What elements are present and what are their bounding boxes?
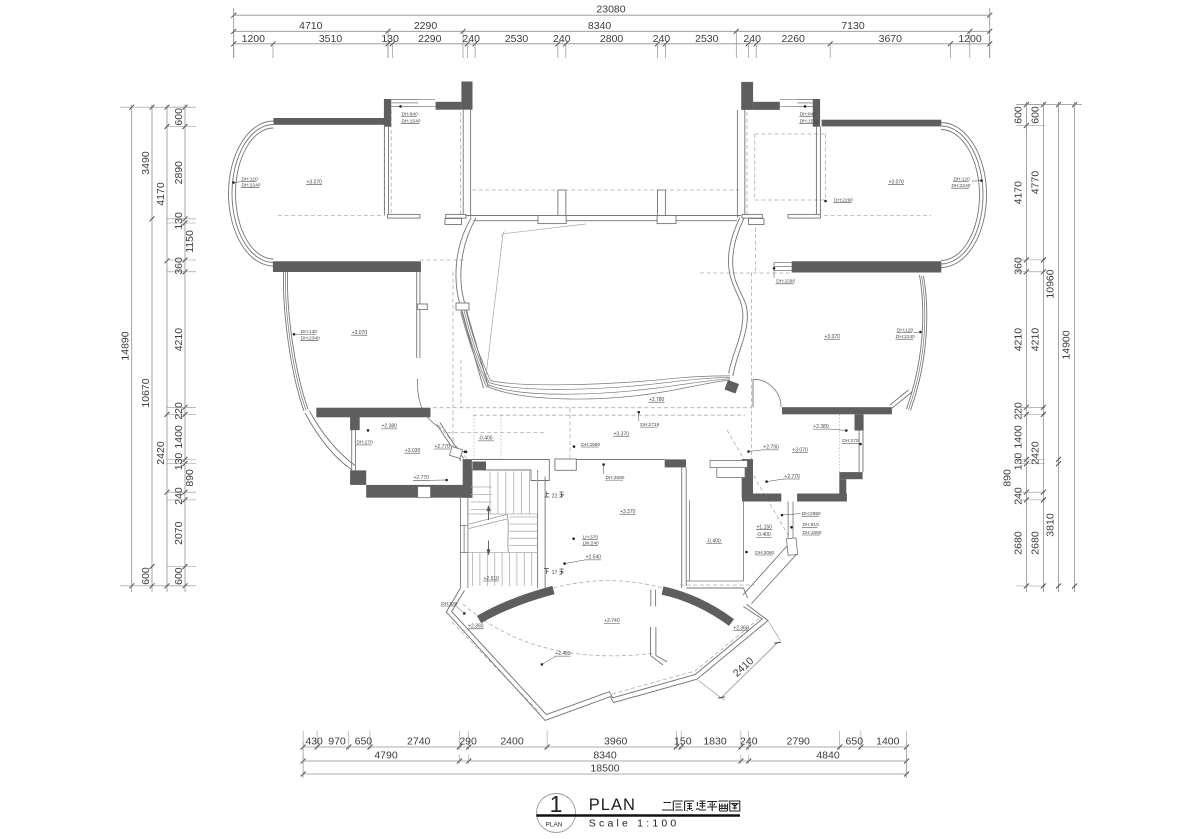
svg-text:650: 650 (355, 736, 373, 748)
svg-text:4710: 4710 (299, 20, 323, 32)
svg-text:2420: 2420 (155, 441, 167, 465)
svg-text:22: 22 (552, 494, 558, 500)
svg-text:240: 240 (740, 736, 758, 748)
svg-text:430: 430 (305, 736, 323, 748)
svg-text:2530: 2530 (695, 33, 719, 45)
svg-text:2740: 2740 (407, 736, 431, 748)
svg-text:4210: 4210 (1013, 328, 1025, 352)
svg-text:4210: 4210 (173, 328, 185, 352)
svg-text:3510: 3510 (319, 33, 343, 45)
svg-text:14890: 14890 (120, 331, 132, 360)
svg-text:14900: 14900 (1061, 330, 1073, 359)
svg-text:3960: 3960 (604, 736, 628, 748)
svg-text:17: 17 (552, 570, 558, 576)
svg-text:10670: 10670 (140, 378, 152, 407)
svg-text:4840: 4840 (816, 749, 840, 761)
svg-text:2530: 2530 (505, 33, 529, 45)
svg-text:8340: 8340 (588, 20, 612, 32)
svg-text:2890: 2890 (173, 161, 185, 185)
svg-text:4770: 4770 (1030, 171, 1042, 195)
svg-text:240: 240 (1013, 487, 1025, 505)
svg-text:360: 360 (1013, 257, 1025, 275)
svg-text:PLAN: PLAN (589, 796, 636, 814)
svg-text:240: 240 (653, 33, 671, 45)
svg-text:1400: 1400 (173, 425, 185, 449)
svg-text:240: 240 (743, 33, 761, 45)
svg-text:130: 130 (173, 212, 185, 230)
svg-text:2790: 2790 (787, 736, 811, 748)
svg-text:1150: 1150 (184, 230, 196, 253)
svg-text:600: 600 (1030, 106, 1042, 124)
svg-text:130: 130 (381, 33, 399, 45)
svg-text:150: 150 (674, 736, 692, 748)
svg-text:1400: 1400 (876, 736, 900, 748)
svg-text:600: 600 (173, 567, 185, 585)
svg-text:600: 600 (140, 567, 152, 585)
svg-text:1400: 1400 (1013, 425, 1025, 449)
svg-text:240: 240 (462, 33, 480, 45)
svg-text:360: 360 (173, 257, 185, 275)
svg-text:2070: 2070 (173, 521, 185, 545)
svg-text:890: 890 (1002, 469, 1014, 487)
svg-text:890: 890 (184, 469, 196, 487)
svg-text:4210: 4210 (1030, 328, 1042, 352)
svg-text:1830: 1830 (703, 736, 727, 748)
svg-text:10960: 10960 (1045, 269, 1057, 298)
svg-text:290: 290 (459, 736, 477, 748)
svg-text:2420: 2420 (1030, 441, 1042, 465)
svg-text:2680: 2680 (1013, 531, 1025, 555)
svg-text:600: 600 (173, 108, 185, 126)
svg-text:240: 240 (173, 487, 185, 505)
svg-text:2260: 2260 (782, 33, 806, 45)
svg-text:650: 650 (846, 736, 864, 748)
svg-text:4170: 4170 (1013, 181, 1025, 205)
svg-text:Scale 1:100: Scale 1:100 (589, 818, 680, 830)
svg-text:220: 220 (173, 402, 185, 420)
svg-text:2680: 2680 (1030, 531, 1042, 555)
svg-text:1200: 1200 (242, 33, 266, 45)
svg-text:7130: 7130 (841, 20, 865, 32)
svg-text:2290: 2290 (418, 33, 442, 45)
svg-text:1200: 1200 (958, 33, 982, 45)
svg-text:23080: 23080 (596, 3, 625, 15)
svg-text:8340: 8340 (593, 749, 617, 761)
svg-text:600: 600 (1013, 106, 1025, 124)
svg-text:970: 970 (328, 736, 346, 748)
svg-text:18500: 18500 (590, 762, 619, 774)
svg-text:1: 1 (550, 791, 563, 817)
svg-text:3810: 3810 (1045, 513, 1057, 537)
svg-text:3670: 3670 (879, 33, 903, 45)
svg-text:2800: 2800 (600, 33, 624, 45)
svg-text:130: 130 (1013, 453, 1025, 471)
svg-text:220: 220 (1013, 402, 1025, 420)
svg-text:240: 240 (553, 33, 571, 45)
svg-text:4170: 4170 (155, 182, 167, 206)
svg-text:2400: 2400 (500, 736, 524, 748)
svg-text:130: 130 (173, 453, 185, 471)
svg-text:PLAN: PLAN (546, 822, 563, 829)
svg-text:4790: 4790 (374, 749, 398, 761)
svg-text:3490: 3490 (140, 151, 152, 175)
svg-text:2290: 2290 (414, 20, 438, 32)
